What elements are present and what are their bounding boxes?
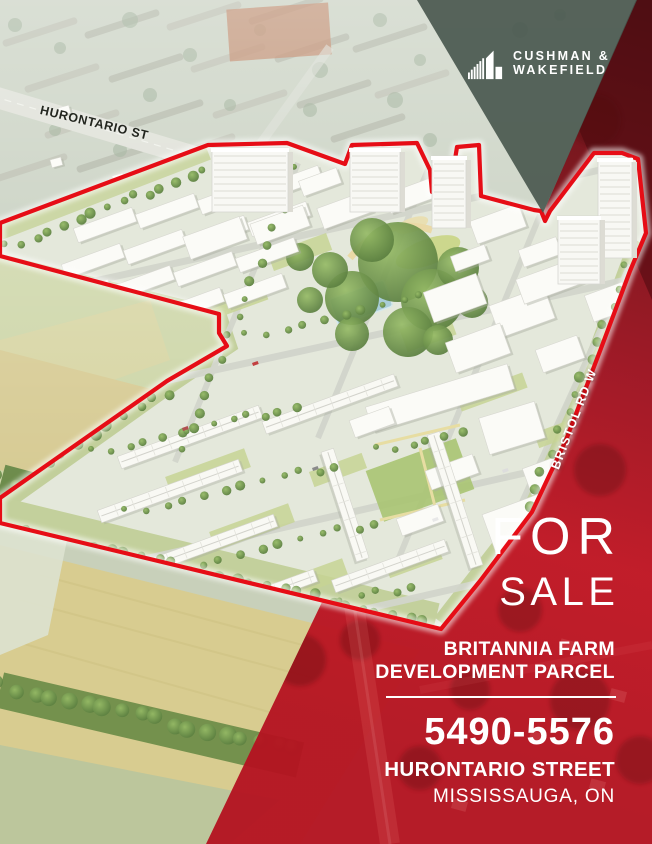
- property-title-line-2: DEVELOPMENT PARCEL: [375, 661, 615, 684]
- property-title-line-1: BRITANNIA FARM: [375, 638, 615, 661]
- building-bars-icon: [468, 46, 504, 80]
- address-street: HURONTARIO STREET: [384, 758, 615, 782]
- address-number-range: 5490-5576: [384, 711, 615, 753]
- logo-wordmark: CUSHMAN & WAKEFIELD: [513, 48, 610, 79]
- flyer-page: CUSHMAN & WAKEFIELD HURONTARIO ST BRISTO…: [0, 0, 652, 844]
- divider-rule: [386, 696, 616, 698]
- logo-line-1: CUSHMAN &: [513, 50, 610, 63]
- logo-line-2: WAKEFIELD: [513, 64, 610, 77]
- for-sale-line-2: SALE: [491, 571, 619, 613]
- address-city: MISSISSAUGA, ON: [384, 786, 615, 808]
- for-sale-line-1: FOR: [491, 510, 622, 564]
- cushman-wakefield-logo: CUSHMAN & WAKEFIELD: [468, 46, 610, 80]
- property-title: BRITANNIA FARM DEVELOPMENT PARCEL: [375, 638, 615, 683]
- for-sale-headline: FOR SALE: [491, 510, 615, 613]
- property-address: 5490-5576 HURONTARIO STREET MISSISSAUGA,…: [384, 711, 615, 808]
